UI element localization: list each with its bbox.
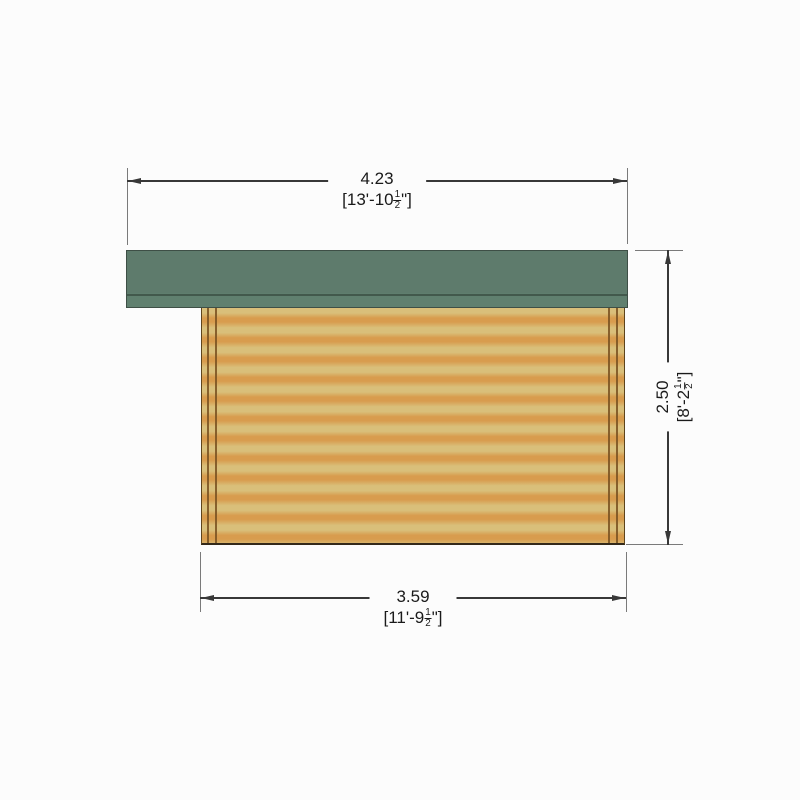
right-fraction: 12 (674, 382, 696, 389)
right-extension-line-bottom (626, 544, 683, 545)
corner-post-line-left-inner (215, 308, 217, 543)
top-dimension-imperial: [13'-1012"] (342, 189, 412, 212)
top-fraction: 12 (394, 190, 401, 212)
right-arrow-up-icon (665, 251, 671, 264)
bottom-arrow-left-icon (201, 595, 214, 601)
bottom-arrow-right-icon (612, 595, 625, 601)
corner-post-line-left-outer (207, 308, 209, 543)
right-dimension-metric: 2.50 (652, 372, 673, 423)
bottom-dimension-imperial: [11'-912"] (384, 607, 443, 630)
elevation-drawing: 4.23 [13'-1012"] 2.50 [8'-212"] 3.59 [11… (0, 0, 800, 800)
top-arrow-left-icon (128, 178, 141, 184)
bottom-extension-line-right (626, 552, 627, 612)
right-dimension-imperial: [8'-212"] (673, 372, 696, 423)
corner-post-line-right-outer (616, 308, 618, 543)
roof-slab (126, 250, 628, 308)
corner-post-line-right-inner (608, 308, 610, 543)
top-extension-line-right (627, 168, 628, 244)
top-arrow-right-icon (613, 178, 626, 184)
right-dimension-label: 2.50 [8'-212"] (652, 363, 696, 432)
top-dimension-label: 4.23 [13'-1012"] (328, 168, 426, 212)
wall-cladding (201, 308, 625, 545)
bottom-extension-line-left (200, 552, 201, 612)
right-arrow-down-icon (665, 531, 671, 544)
right-extension-line-top (635, 250, 683, 251)
roof-fascia-line (127, 294, 627, 296)
bottom-dimension-metric: 3.59 (384, 586, 443, 607)
bottom-dimension-label: 3.59 [11'-912"] (370, 586, 457, 630)
top-dimension-metric: 4.23 (342, 168, 412, 189)
